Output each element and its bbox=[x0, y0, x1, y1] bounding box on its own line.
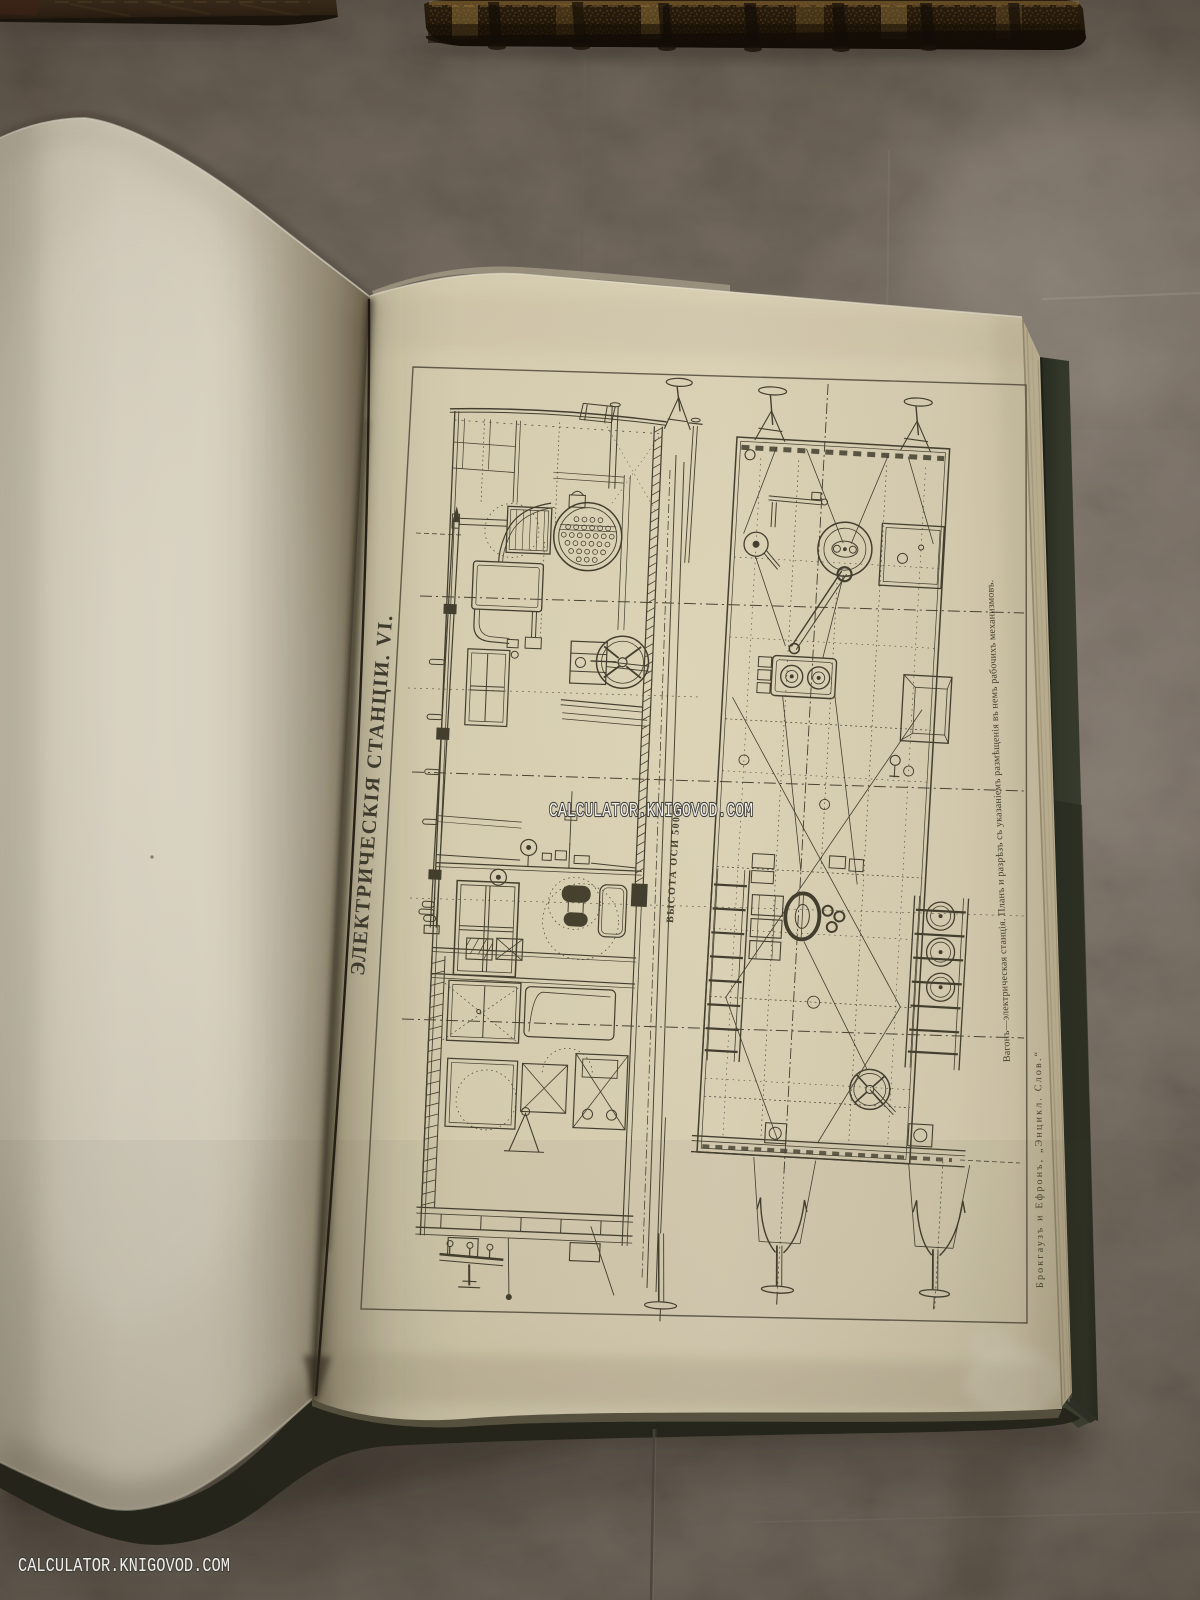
svg-text:Брокгаузъ и Ефронъ, „Энцикл. С: Брокгаузъ и Ефронъ, „Энцикл. Слов.“ bbox=[1033, 1050, 1046, 1288]
svg-text:CALCULATOR.KNIGOVOD.COM: CALCULATOR.KNIGOVOD.COM bbox=[549, 800, 753, 822]
svg-text:CALCULATOR.KNIGOVOD.COM: CALCULATOR.KNIGOVOD.COM bbox=[18, 1555, 230, 1577]
